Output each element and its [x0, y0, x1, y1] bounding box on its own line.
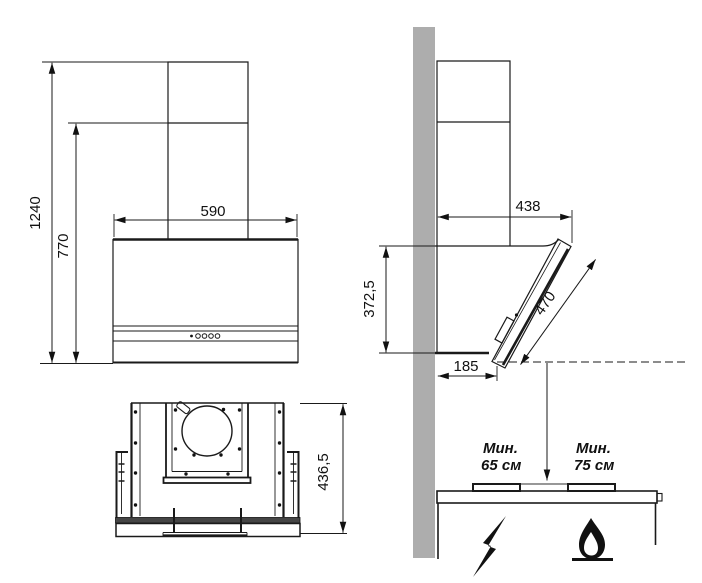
motor-plate — [164, 401, 251, 483]
burner-right — [568, 484, 615, 491]
wing-left — [117, 452, 129, 521]
front-view: 1240 770 590 — [27, 62, 298, 364]
lightning-icon — [473, 516, 506, 577]
front-hood-body — [113, 240, 298, 363]
svg-text:75 см: 75 см — [574, 457, 614, 474]
control-buttons — [190, 334, 220, 339]
dim-label-470: 470 — [531, 288, 559, 318]
cooktop: Мин. 65 см Мин. 75 см — [437, 440, 662, 577]
dim-front-body-height: 770 — [55, 123, 168, 363]
vent-outlet-circle — [182, 406, 232, 456]
dim-label-436-5: 436,5 — [315, 453, 332, 491]
side-chimney — [437, 61, 510, 353]
top-view: 436,5 — [116, 401, 348, 537]
svg-text:Мин.: Мин. — [483, 440, 518, 457]
side-rail-right — [275, 403, 281, 516]
dim-label-590: 590 — [200, 203, 225, 220]
dim-front-width: 590 — [114, 203, 297, 237]
dim-bottom-depth: 185 — [438, 358, 497, 381]
dim-side-depth: 438 — [438, 198, 572, 243]
dim-label-438: 438 — [515, 198, 540, 215]
glass-edge-strip — [116, 518, 301, 524]
dim-front-total-height: 1240 — [27, 62, 168, 364]
dim-top-view-depth: 436,5 — [300, 404, 347, 534]
dim-label-372-5: 372,5 — [361, 280, 378, 318]
side-rail-left — [134, 403, 140, 516]
hood-installation-drawing: 1240 770 590 — [0, 0, 702, 583]
svg-text:Мин.: Мин. — [576, 440, 611, 457]
dim-label-770: 770 — [55, 233, 72, 258]
dim-label-185: 185 — [453, 358, 478, 375]
glass-front-edge — [116, 524, 300, 537]
dim-label-1240: 1240 — [27, 196, 44, 229]
svg-text:65 см: 65 см — [481, 457, 521, 474]
side-view: 438 372,5 470 185 — [361, 27, 687, 577]
wall — [413, 27, 435, 558]
flame-icon — [572, 518, 613, 560]
burner-left — [473, 484, 520, 491]
label-min-electric: Мин. 65 см — [481, 440, 521, 474]
wing-right — [287, 452, 299, 521]
label-min-gas: Мин. 75 см — [574, 440, 614, 474]
